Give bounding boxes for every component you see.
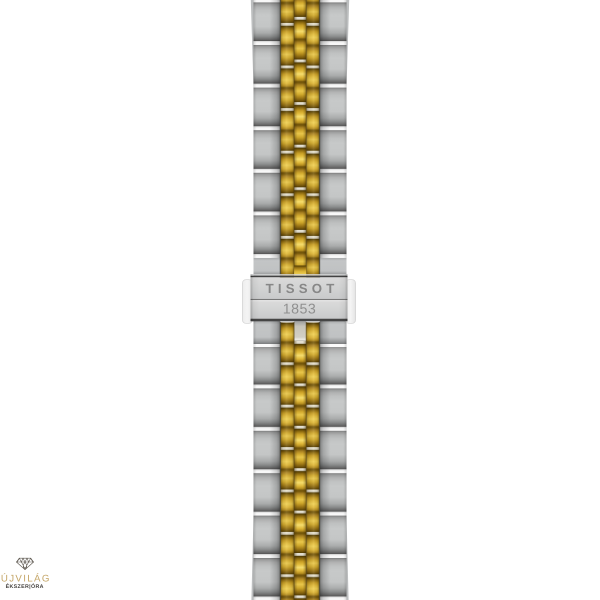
svg-text:ÚJVILÁG: ÚJVILÁG <box>1 573 51 585</box>
svg-text:TISSOT: TISSOT <box>266 281 339 296</box>
svg-text:1853: 1853 <box>283 302 317 318</box>
svg-text:ÉKSZER|ÓRA: ÉKSZER|ÓRA <box>6 583 44 590</box>
